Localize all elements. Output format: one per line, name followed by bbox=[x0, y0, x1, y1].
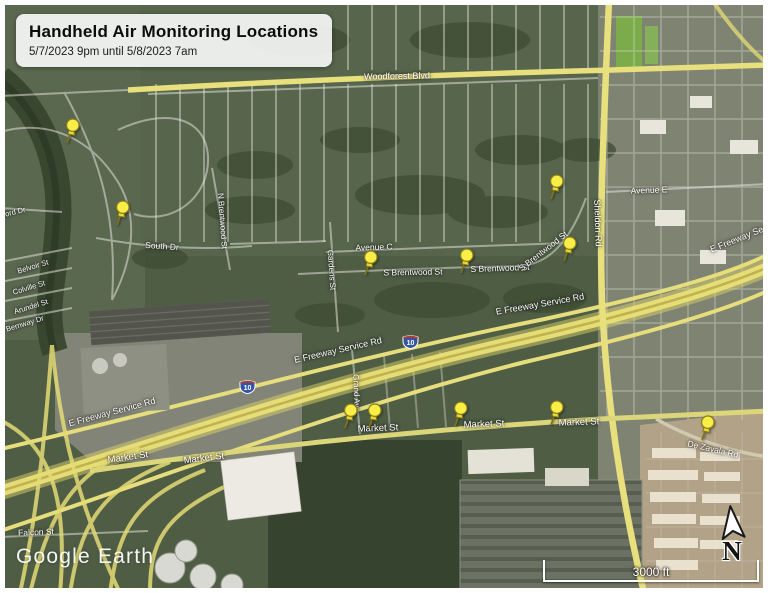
monitoring-pin[interactable] bbox=[449, 401, 469, 432]
monitoring-pin[interactable] bbox=[545, 400, 565, 431]
monitoring-pin[interactable] bbox=[558, 236, 578, 267]
monitoring-pin[interactable] bbox=[363, 403, 383, 434]
monitoring-pin[interactable] bbox=[61, 118, 81, 149]
title-box: Handheld Air Monitoring Locations 5/7/20… bbox=[16, 14, 332, 67]
monitoring-pin[interactable] bbox=[339, 403, 359, 434]
monitoring-pin[interactable] bbox=[696, 415, 716, 446]
map-canvas[interactable]: Woodforest BlvdSouth DrN Brentwood StShe… bbox=[0, 0, 768, 593]
monitoring-pin[interactable] bbox=[359, 250, 379, 281]
map-title: Handheld Air Monitoring Locations bbox=[29, 22, 318, 42]
scale-bar-label: 3000 ft bbox=[543, 565, 759, 579]
monitoring-pin[interactable] bbox=[455, 248, 475, 279]
north-arrow: N bbox=[708, 504, 756, 562]
north-arrow-label: N bbox=[708, 540, 756, 562]
map-subtitle: 5/7/2023 9pm until 5/8/2023 7am bbox=[29, 46, 318, 58]
google-earth-watermark: Google Earth bbox=[16, 545, 154, 569]
satellite-imagery bbox=[0, 0, 768, 593]
monitoring-pin[interactable] bbox=[111, 200, 131, 231]
monitoring-pin[interactable] bbox=[545, 174, 565, 205]
